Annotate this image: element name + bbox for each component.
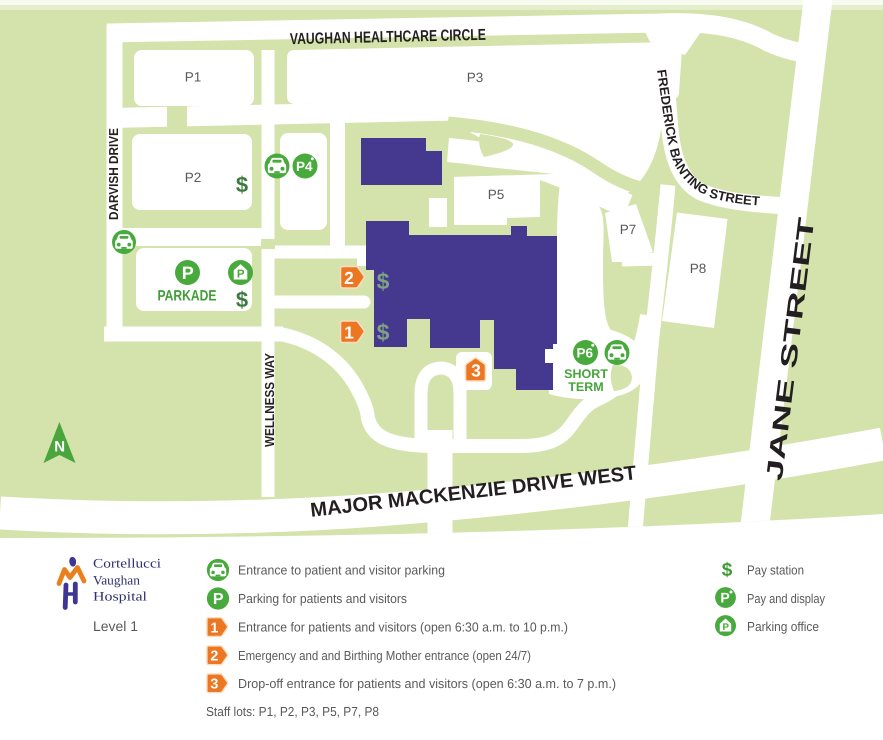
svg-text:Vaughan: Vaughan (93, 573, 141, 588)
svg-text:DARVISH DRIVE: DARVISH DRIVE (106, 128, 121, 220)
svg-text:3: 3 (471, 360, 481, 380)
svg-text:2: 2 (210, 649, 218, 665)
svg-text:TERM: TERM (568, 380, 603, 394)
svg-text:Parking office: Parking office (747, 619, 819, 634)
svg-text:Entrance for patients and visi: Entrance for patients and visitors (open… (238, 620, 568, 635)
svg-text:1: 1 (210, 620, 218, 636)
svg-text:Hospital: Hospital (93, 589, 147, 604)
svg-text:2: 2 (344, 268, 354, 288)
svg-text:$: $ (722, 560, 733, 581)
svg-text:WELLNESS WAY: WELLNESS WAY (262, 353, 277, 447)
svg-text:Parking for patients and visit: Parking for patients and visitors (238, 591, 407, 606)
svg-text:$: $ (236, 172, 248, 197)
svg-text:Pay station: Pay station (747, 563, 804, 578)
svg-text:Staff lots: P1, P2, P3, P5, P7: Staff lots: P1, P2, P3, P5, P7, P8 (206, 704, 379, 719)
svg-text:$: $ (236, 287, 248, 312)
svg-text:P8: P8 (690, 261, 707, 276)
svg-text:P6: P6 (576, 345, 593, 360)
svg-text:P2: P2 (185, 170, 202, 185)
svg-text:Pay and display: Pay and display (747, 591, 825, 606)
svg-text:Emergency and and Birthing Mot: Emergency and and Birthing Mother entran… (238, 648, 531, 663)
svg-text:1: 1 (344, 322, 354, 342)
svg-text:$: $ (377, 268, 390, 294)
svg-text:SHORT: SHORT (564, 367, 608, 381)
svg-text:3: 3 (210, 677, 218, 693)
svg-text:P3: P3 (467, 70, 484, 85)
svg-text:Level 1: Level 1 (93, 618, 138, 634)
svg-text:P7: P7 (620, 222, 637, 237)
svg-text:Entrance to patient and visito: Entrance to patient and visitor parking (238, 563, 445, 578)
svg-text:N: N (54, 439, 65, 456)
svg-text:P1: P1 (185, 70, 202, 85)
svg-text:Cortellucci: Cortellucci (93, 556, 161, 571)
svg-text:P4: P4 (296, 159, 313, 174)
svg-text:P5: P5 (488, 187, 505, 202)
svg-text:Drop-off entrance for patients: Drop-off entrance for patients and visit… (238, 676, 616, 691)
svg-text:PARKADE: PARKADE (158, 288, 217, 305)
svg-text:$: $ (377, 319, 390, 345)
svg-text:P: P (720, 590, 729, 606)
